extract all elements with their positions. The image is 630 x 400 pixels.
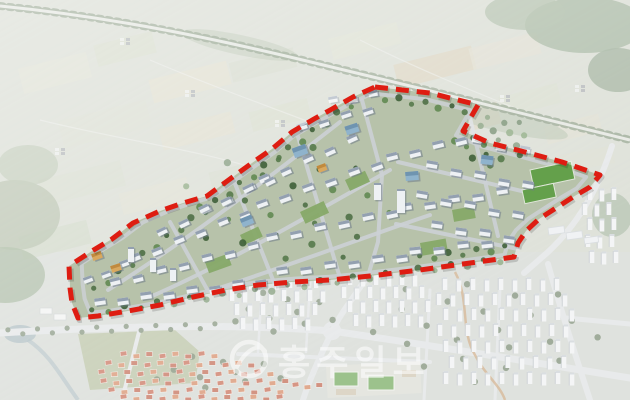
aerial-masterplan-image: 홍주일보 <box>0 0 630 400</box>
corner-fade <box>0 0 630 400</box>
washout-overlay <box>0 0 630 400</box>
watermark-text: 홍주일보 <box>278 344 431 383</box>
aerial-rendering-canvas: 홍주일보 <box>0 0 630 400</box>
